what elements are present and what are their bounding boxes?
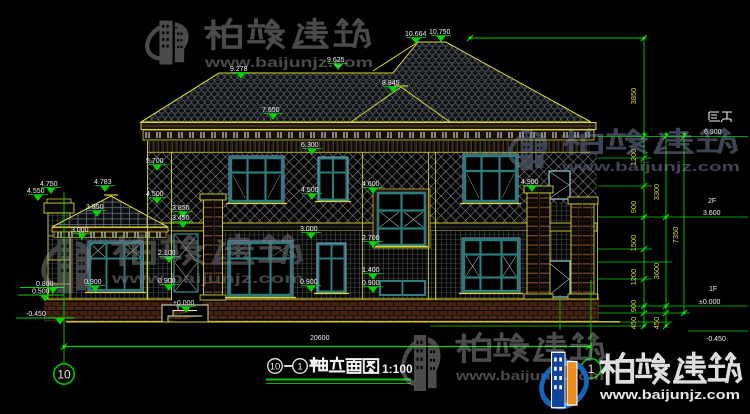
svg-text:20600: 20600 — [310, 335, 330, 342]
svg-text:2.700: 2.700 — [362, 235, 380, 242]
svg-text:0.500: 0.500 — [32, 289, 50, 296]
svg-text:6.300: 6.300 — [301, 142, 319, 149]
svg-text:4.500: 4.500 — [146, 191, 164, 198]
svg-text:www.baijunjz.com: www.baijunjz.com — [204, 54, 373, 70]
svg-text:±0.000: ±0.000 — [173, 300, 194, 307]
svg-text:3.600: 3.600 — [703, 210, 721, 217]
svg-text:7.650: 7.650 — [262, 107, 280, 114]
svg-text:3.000: 3.000 — [300, 226, 318, 233]
svg-text:3300: 3300 — [652, 184, 661, 201]
svg-text:8.845: 8.845 — [382, 80, 400, 87]
svg-text:3.000: 3.000 — [71, 227, 89, 234]
svg-text:3850: 3850 — [629, 88, 638, 105]
svg-text:www.baijunjz.com: www.baijunjz.com — [599, 388, 740, 402]
svg-text:7350: 7350 — [671, 227, 680, 244]
svg-text:3.850: 3.850 — [86, 204, 104, 211]
svg-text:1:100: 1:100 — [382, 362, 413, 376]
svg-text:10.664: 10.664 — [405, 31, 427, 38]
svg-text:www.baijunjz.com: www.baijunjz.com — [110, 270, 304, 286]
svg-text:3.850: 3.850 — [172, 205, 190, 212]
svg-text:1F: 1F — [709, 286, 717, 293]
svg-text:450: 450 — [652, 317, 661, 330]
svg-text:4.783: 4.783 — [94, 179, 112, 186]
svg-text:5.700: 5.700 — [146, 158, 164, 165]
svg-text:4.550: 4.550 — [27, 188, 45, 195]
svg-text:1200: 1200 — [629, 269, 638, 286]
svg-text:2F: 2F — [708, 198, 716, 205]
svg-text:900: 900 — [629, 300, 638, 313]
svg-text:450: 450 — [629, 317, 638, 330]
svg-text:www.baijunjz.com: www.baijunjz.com — [560, 160, 740, 174]
svg-text:1500: 1500 — [629, 235, 638, 252]
svg-text:4.500: 4.500 — [301, 187, 319, 194]
svg-text:1.400: 1.400 — [362, 267, 380, 274]
svg-text:0.900: 0.900 — [362, 280, 380, 287]
svg-text:1: 1 — [297, 362, 302, 373]
svg-text:10.750: 10.750 — [429, 29, 451, 36]
svg-text:±0.000: ±0.000 — [699, 299, 720, 306]
svg-text:4.750: 4.750 — [40, 181, 58, 188]
svg-text:10: 10 — [57, 368, 71, 382]
svg-text:3.450: 3.450 — [172, 215, 190, 222]
svg-text:10: 10 — [270, 362, 281, 373]
svg-text:-0.450: -0.450 — [26, 311, 46, 318]
svg-text:4.600: 4.600 — [362, 181, 380, 188]
svg-text:4.900: 4.900 — [521, 179, 539, 186]
svg-text:900: 900 — [629, 201, 638, 214]
svg-text:-0.450: -0.450 — [706, 336, 726, 343]
svg-text:3600: 3600 — [652, 263, 661, 280]
